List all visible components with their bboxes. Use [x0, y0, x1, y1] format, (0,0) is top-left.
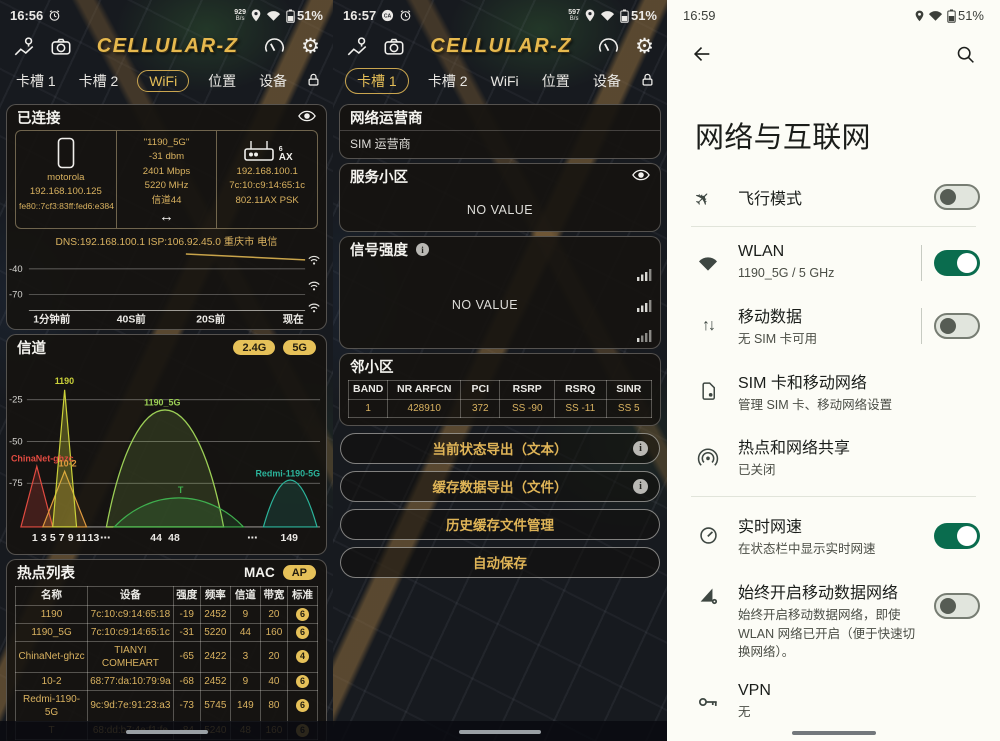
- dns-isp-line: DNS:192.168.100.1 ISP:106.92.45.0 重庆市 电信: [7, 229, 326, 249]
- mobile-data-arrows-icon: ↑↓: [695, 313, 721, 339]
- neighbor-cell-card: 邻小区 BAND NR ARFCN PCI RSRP RSRQ SINR 142…: [339, 353, 661, 426]
- neighbor-cell-table: BAND NR ARFCN PCI RSRP RSRQ SINR 1428910…: [348, 380, 652, 418]
- alarm-icon: [399, 9, 412, 22]
- network-speed-indicator: 597 B/s: [568, 9, 580, 22]
- link-column: "1190_5G" -31 dbm 2401 Mbps 5220 MHz 信道4…: [116, 131, 217, 228]
- item-subtitle: 1190_5G / 5 GHz: [738, 264, 911, 283]
- map-route-icon[interactable]: [13, 36, 35, 58]
- ap-curve-redmi: [263, 480, 317, 527]
- wifi-standard-badge: 4: [296, 650, 309, 663]
- list-item-realtime-speed[interactable]: 实时网速 在状态栏中显示实时网速: [667, 503, 1000, 569]
- wifi6-ax-badge: 6AX: [279, 146, 293, 163]
- rssi-history-line: [186, 254, 305, 260]
- mobile-data-always-icon: [695, 583, 721, 609]
- y-tick: -75: [9, 478, 23, 489]
- x-tick: 1: [32, 533, 38, 544]
- location-icon: [251, 9, 261, 22]
- x-tick: ⋯: [100, 533, 110, 544]
- battery-percent: 51%: [631, 8, 657, 23]
- router-mac: 7c:10:c9:14:65:1c: [220, 179, 314, 193]
- toggle-separator: [921, 245, 922, 281]
- item-title: WLAN: [738, 243, 784, 260]
- band-24g-pill[interactable]: 2.4G: [233, 340, 275, 355]
- battery-percent: 51%: [958, 8, 984, 23]
- list-item-sim-network[interactable]: SIM 卡和移动网络 管理 SIM 卡、移动网络设置: [667, 359, 1000, 425]
- vowifi-icon: [600, 10, 615, 22]
- x-tick: 9: [68, 533, 74, 544]
- speedtest-icon[interactable]: [263, 36, 286, 58]
- app-bar: CELLULAR-Z ⚙: [333, 28, 667, 65]
- wifi-standard-badge: 6: [296, 675, 309, 688]
- screen: 16:56 929 B/s 51% CELLULAR-Z ⚙: [0, 0, 1000, 741]
- table-row[interactable]: 11907c:10:c9:14:65:18-1924529206: [16, 605, 318, 623]
- export-cache-data-button[interactable]: 缓存数据导出（文件）i: [340, 471, 660, 502]
- x-tick: 20S前: [196, 312, 226, 324]
- signal-bars-icon: [637, 299, 652, 312]
- serving-cell-title: 服务小区: [350, 166, 408, 187]
- x-tick: 现在: [283, 312, 304, 324]
- phone-ipv6: fe80::7cf3:83ff:fed6:e384: [19, 200, 113, 213]
- back-arrow-icon[interactable]: [691, 43, 713, 70]
- ap-label: 1190_5G: [144, 398, 180, 408]
- item-title: 始终开启移动数据网络: [738, 585, 898, 602]
- link-arrow-icon: ↔: [120, 209, 214, 224]
- neighbor-cell-title: 邻小区: [350, 356, 394, 377]
- tab-sim2[interactable]: 卡槽 2: [424, 68, 472, 94]
- link-frequency: 5220 MHz: [120, 179, 214, 193]
- realtime-speed-toggle[interactable]: [934, 523, 980, 549]
- home-indicator[interactable]: [792, 731, 876, 735]
- wlan-toggle[interactable]: [934, 250, 980, 276]
- settings-top-bar: [667, 23, 1000, 70]
- export-current-state-button[interactable]: 当前状态导出（文本）i: [340, 433, 660, 464]
- camera-icon[interactable]: [383, 36, 405, 58]
- lock-icon[interactable]: [306, 72, 321, 91]
- x-tick: 11: [76, 533, 87, 544]
- network-speed-indicator: 929 B/s: [234, 9, 246, 22]
- toggle-separator: [921, 308, 922, 344]
- navigation-bar: [333, 721, 667, 741]
- link-channel: 信道44: [120, 194, 214, 208]
- phone-icon: [19, 137, 113, 169]
- map-route-icon[interactable]: [346, 36, 368, 58]
- connection-diagram: motorola 192.168.100.125 fe80::7cf3:83ff…: [15, 130, 318, 229]
- battery-icon: [620, 9, 629, 23]
- signal-strength-value: NO VALUE: [340, 262, 630, 348]
- item-subtitle: 始终开启移动数据网络，即使 WLAN 网络已开启（便于快速切换网络）。: [738, 606, 924, 662]
- list-item-wlan[interactable]: WLAN 1190_5G / 5 GHz: [667, 233, 1000, 293]
- eye-icon[interactable]: [632, 169, 650, 185]
- status-bar: 16:57 CA 597 B/s 51%: [333, 0, 667, 28]
- connected-title: 已连接: [17, 107, 61, 128]
- ap-filter-pill[interactable]: AP: [283, 565, 316, 580]
- x-tick: 48: [168, 533, 180, 544]
- phone-name: motorola: [19, 171, 113, 185]
- table-row[interactable]: Redmi-1190-5G9c:9d:7e:91:23:a3-735745149…: [16, 690, 318, 721]
- always-on-mobile-data-toggle[interactable]: [934, 593, 980, 619]
- x-tick: 5: [50, 533, 56, 544]
- list-item-mobile-data[interactable]: ↑↓ 移动数据 无 SIM 卡可用: [667, 293, 1000, 359]
- home-indicator[interactable]: [459, 730, 541, 734]
- tab-bar: 卡槽 1 卡槽 2 WiFi 位置 设备: [0, 65, 333, 100]
- y-tick: -40: [9, 263, 23, 274]
- divider: [691, 496, 976, 497]
- hotspot-table-header: 名称 设备 强度 频率 信道 带宽 标准: [16, 587, 318, 606]
- speedtest-icon[interactable]: [597, 36, 620, 58]
- mobile-data-toggle[interactable]: [934, 313, 980, 339]
- tab-device[interactable]: 设备: [255, 68, 291, 94]
- signal-history-chart: -40 -70 1分钟前 40S前 20S前 现在: [7, 249, 326, 325]
- ca-badge-icon: CA: [381, 9, 394, 22]
- navigation-bar: [0, 721, 333, 741]
- battery-indicator: 51%: [947, 8, 984, 23]
- settings-gear-icon[interactable]: ⚙: [301, 36, 320, 57]
- channel-chart: -25 -50 -75 ChinaNet-ghzc 1190 10-2 1190…: [7, 360, 326, 549]
- info-icon[interactable]: i: [416, 243, 429, 256]
- item-title: SIM 卡和移动网络: [738, 375, 867, 392]
- channel-title: 信道: [17, 337, 46, 358]
- item-title: 热点和网络共享: [738, 440, 850, 457]
- ap-label: 1190: [55, 376, 74, 386]
- page-title: 网络与互联网: [695, 114, 1000, 156]
- router-ipv4: 192.168.100.1: [220, 165, 314, 179]
- auto-save-button[interactable]: 自动保存: [340, 547, 660, 578]
- tab-location[interactable]: 位置: [538, 68, 574, 94]
- battery-percent: 51%: [297, 8, 323, 23]
- x-tick: 149: [281, 533, 299, 544]
- phone-ipv4: 192.168.100.125: [19, 185, 113, 199]
- hotspot-list-card: 热点列表 MAC AP 名称 设备 强度 频率 信道 带宽 标准: [6, 559, 327, 741]
- app-logo: CELLULAR-Z: [87, 35, 248, 58]
- svg-text:CA: CA: [384, 14, 392, 20]
- alarm-icon: [48, 9, 61, 22]
- app-bar: CELLULAR-Z ⚙: [0, 28, 333, 65]
- settings-gear-icon[interactable]: ⚙: [635, 36, 654, 57]
- home-indicator[interactable]: [126, 730, 208, 734]
- item-subtitle: 无: [738, 703, 980, 722]
- lock-icon[interactable]: [640, 72, 655, 91]
- band-5g-pill[interactable]: 5G: [283, 340, 316, 355]
- divider: [691, 226, 976, 227]
- history-cache-manage-button[interactable]: 历史缓存文件管理: [340, 509, 660, 540]
- y-tick: -25: [9, 394, 23, 405]
- tab-sim1[interactable]: 卡槽 1: [345, 68, 409, 94]
- x-tick: 44: [150, 533, 162, 544]
- status-bar: 16:59 51%: [667, 0, 1000, 23]
- item-subtitle: 已关闭: [738, 461, 980, 480]
- serving-cell-card: 服务小区 NO VALUE: [339, 163, 661, 232]
- item-subtitle: 管理 SIM 卡、移动网络设置: [738, 396, 980, 415]
- clock-time: 16:59: [683, 8, 716, 23]
- eye-icon[interactable]: [298, 110, 316, 126]
- network-settings-panel: 16:59 51% 网络与互联网 ✈ 飞行模式: [667, 0, 1000, 741]
- channel-card: 信道 2.4G 5G -25 -50 -75 ChinaNet-ghzc: [6, 334, 327, 555]
- mac-toggle-label[interactable]: MAC: [244, 565, 275, 580]
- table-row[interactable]: 10-268:77:da:10:79:9a-6824529406: [16, 672, 318, 690]
- tab-device[interactable]: 设备: [589, 68, 625, 94]
- link-ssid: "1190_5G": [120, 136, 214, 150]
- x-tick: 13: [88, 533, 100, 544]
- list-item-always-on-mobile-data[interactable]: 始终开启移动数据网络 始终开启移动数据网络，即使 WLAN 网络已开启（便于快速…: [667, 569, 1000, 672]
- cellularz-wifi-panel: 16:56 929 B/s 51% CELLULAR-Z ⚙: [0, 0, 333, 741]
- hotspot-icon: [695, 444, 721, 470]
- y-tick: -70: [9, 289, 23, 300]
- y-tick: -50: [9, 436, 23, 447]
- wifi-standard-badge: 6: [296, 699, 309, 712]
- info-icon[interactable]: i: [633, 441, 648, 456]
- wifi-level-icon: [309, 282, 319, 290]
- hotspot-list-title: 热点列表: [17, 562, 75, 583]
- cellularz-sim1-panel: 16:57 CA 597 B/s 51% CELLULAR-Z: [333, 0, 667, 741]
- item-subtitle: 在状态栏中显示实时网速: [738, 540, 924, 559]
- hotspot-table: 名称 设备 强度 频率 信道 带宽 标准 11907c:10:c9:14:65:…: [15, 586, 318, 740]
- table-row[interactable]: ChinaNet-ghzcTIANYI COMHEART-6524223204: [16, 641, 318, 672]
- ap-label: 10-2: [59, 459, 77, 469]
- wifi-standard-badge: 6: [296, 608, 309, 621]
- tab-bar: 卡槽 1 卡槽 2 WiFi 位置 设备: [333, 65, 667, 100]
- signal-bars-icon: [637, 329, 652, 342]
- signal-strength-title: 信号强度: [350, 239, 408, 260]
- x-tick: 3: [41, 533, 47, 544]
- operator-title: 网络运营商: [350, 107, 423, 128]
- ap-label: Redmi-1190-5G: [255, 469, 320, 479]
- clock-time: 16:57: [343, 8, 376, 23]
- link-speed: 2401 Mbps: [120, 165, 214, 179]
- tab-wifi[interactable]: WiFi: [137, 70, 189, 92]
- link-rssi: -31 dbm: [120, 150, 214, 164]
- location-icon: [915, 10, 924, 22]
- list-item-hotspot-tethering[interactable]: 热点和网络共享 已关闭: [667, 424, 1000, 490]
- x-tick: 1分钟前: [33, 312, 71, 324]
- wifi-level-icon: [309, 304, 319, 312]
- camera-icon[interactable]: [50, 36, 72, 58]
- operator-card: 网络运营商 SIM 运营商: [339, 104, 661, 159]
- serving-cell-value: NO VALUE: [340, 189, 660, 231]
- wifi-standard-badge: 6: [296, 626, 309, 639]
- status-bar: 16:56 929 B/s 51%: [0, 0, 333, 28]
- item-title: VPN: [738, 682, 771, 699]
- battery-icon: [947, 9, 956, 23]
- connected-card: 已连接 motorola 192.168.100.125 fe80::7cf3:…: [6, 104, 327, 330]
- ap-label: T: [178, 486, 184, 496]
- signal-bars-icon: [637, 268, 652, 281]
- settings-list: ✈ 飞行模式 WLAN 1190_5G / 5 GHz ↑↓ 移动数据 无 SI…: [667, 174, 1000, 741]
- router-icon: 6AX: [220, 137, 314, 163]
- item-title: 实时网速: [738, 519, 802, 536]
- operator-value: SIM 运营商: [340, 130, 660, 158]
- wifi-level-icon: [309, 256, 319, 264]
- item-title: 移动数据: [738, 309, 802, 326]
- speedometer-icon: [695, 523, 721, 549]
- sim-card-icon: [695, 378, 721, 404]
- airplane-mode-toggle[interactable]: [934, 184, 980, 210]
- router-standard: 802.11AX PSK: [220, 194, 314, 208]
- vpn-key-icon: [695, 689, 721, 715]
- clock-time: 16:56: [10, 8, 43, 23]
- list-item-vpn[interactable]: VPN 无: [667, 672, 1000, 732]
- battery-icon: [286, 9, 295, 23]
- tab-sim2[interactable]: 卡槽 2: [75, 68, 123, 94]
- list-item-airplane-mode[interactable]: ✈ 飞行模式: [667, 174, 1000, 220]
- x-tick: 7: [59, 533, 65, 544]
- item-subtitle: 无 SIM 卡可用: [738, 330, 911, 349]
- wifi-icon: [695, 250, 721, 276]
- table-row[interactable]: 1428910372SS -90SS -11SS 5: [349, 399, 652, 417]
- table-row[interactable]: 1190_5G7c:10:c9:14:65:1c-315220441606: [16, 623, 318, 641]
- item-title: 飞行模式: [738, 191, 802, 208]
- app-logo: CELLULAR-Z: [420, 35, 582, 58]
- phone-column: motorola 192.168.100.125 fe80::7cf3:83ff…: [16, 131, 116, 228]
- tab-sim1[interactable]: 卡槽 1: [12, 68, 60, 94]
- neighbor-table-header: BAND NR ARFCN PCI RSRP RSRQ SINR: [349, 381, 652, 400]
- airplane-icon: ✈: [690, 179, 727, 216]
- location-icon: [585, 9, 595, 22]
- search-icon[interactable]: [955, 44, 976, 70]
- vowifi-icon: [266, 10, 281, 22]
- tab-wifi[interactable]: WiFi: [487, 70, 523, 92]
- info-icon[interactable]: i: [633, 479, 648, 494]
- battery-indicator: 51%: [286, 8, 323, 23]
- router-column: 6AX 192.168.100.1 7c:10:c9:14:65:1c 802.…: [216, 131, 317, 228]
- wifi-status-icon: [928, 10, 943, 22]
- x-tick: ⋯: [247, 533, 257, 544]
- x-tick: 40S前: [117, 312, 147, 324]
- signal-strength-card: 信号强度 i NO VALUE: [339, 236, 661, 349]
- battery-indicator: 51%: [620, 8, 657, 23]
- tab-location[interactable]: 位置: [204, 68, 240, 94]
